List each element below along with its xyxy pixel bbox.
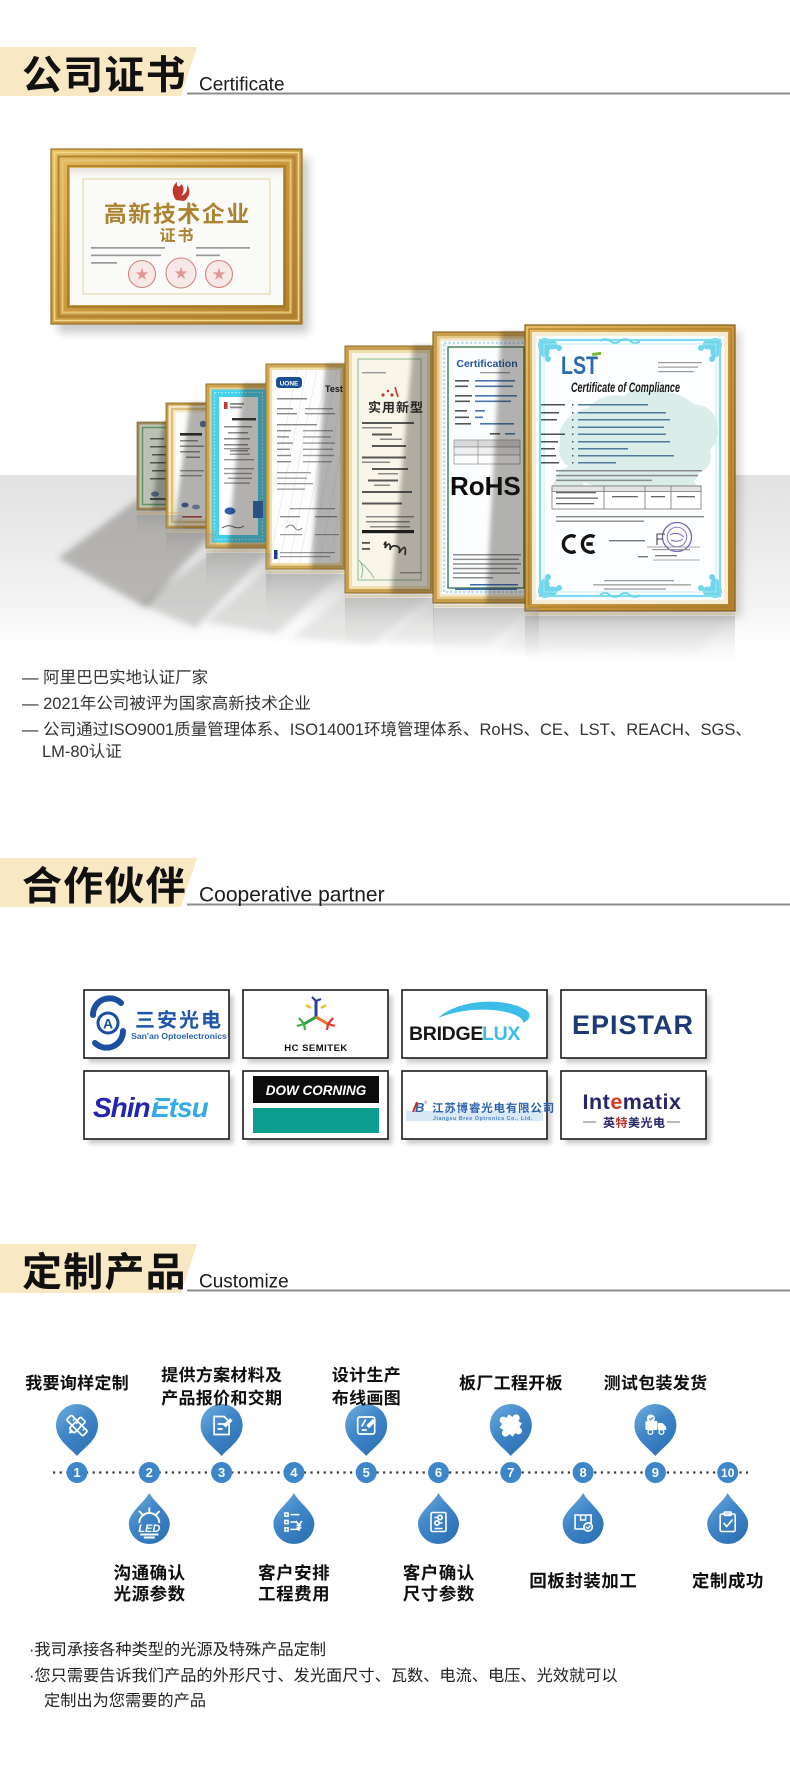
svg-text:REACH: REACH — [626, 721, 684, 739]
svg-text:Certificate of Compliance: Certificate of Compliance — [571, 379, 680, 395]
svg-text:10: 10 — [721, 1466, 735, 1480]
svg-text:Etsu: Etsu — [151, 1092, 209, 1123]
svg-text:Cooperative partner: Cooperative partner — [199, 884, 385, 907]
svg-text:LM-80: LM-80 — [42, 743, 89, 761]
svg-text:A: A — [103, 1016, 113, 1032]
svg-text:4: 4 — [290, 1465, 298, 1480]
svg-text:ISO14001: ISO14001 — [290, 721, 364, 739]
svg-text:SGS: SGS — [701, 721, 736, 739]
svg-text:CE: CE — [540, 721, 563, 739]
svg-text:7: 7 — [507, 1465, 514, 1480]
svg-text:Certificate: Certificate — [199, 75, 285, 96]
svg-text:·: · — [29, 1641, 34, 1659]
svg-text:EPISTAR: EPISTAR — [572, 1010, 694, 1040]
svg-text:·: · — [29, 1667, 34, 1685]
svg-text:BRIDGE: BRIDGE — [409, 1023, 483, 1045]
svg-text:— 2021: — 2021 — [22, 695, 80, 713]
svg-text:Customize: Customize — [199, 1272, 289, 1293]
svg-text:1: 1 — [73, 1465, 80, 1480]
svg-text:6: 6 — [435, 1465, 442, 1480]
svg-text:8: 8 — [579, 1465, 586, 1480]
svg-text:ISO9001: ISO9001 — [109, 721, 174, 739]
svg-text:RoHS: RoHS — [480, 721, 524, 739]
svg-text:UONE: UONE — [280, 381, 299, 388]
svg-text:5: 5 — [363, 1465, 370, 1480]
svg-text:LED: LED — [138, 1523, 160, 1535]
svg-text:HC SEMITEK: HC SEMITEK — [284, 1043, 348, 1054]
svg-text:—: — — [22, 721, 39, 739]
svg-text:DOW CORNING: DOW CORNING — [266, 1083, 367, 1098]
svg-text:LST: LST — [580, 721, 610, 739]
svg-text:San'an Optoelectronics: San'an Optoelectronics — [131, 1031, 227, 1041]
svg-text:3: 3 — [218, 1465, 225, 1480]
svg-text:—: — — [22, 669, 39, 687]
svg-text:Intematix: Intematix — [583, 1090, 682, 1114]
svg-text:LUX: LUX — [482, 1023, 520, 1045]
svg-text:Shin: Shin — [93, 1092, 150, 1123]
svg-text:LST: LST — [561, 352, 598, 380]
svg-text:9: 9 — [652, 1465, 659, 1480]
svg-text:2: 2 — [146, 1465, 153, 1480]
svg-text:Jiangsu Bree Optronics Co., Lt: Jiangsu Bree Optronics Co., Ltd. — [433, 1116, 533, 1122]
